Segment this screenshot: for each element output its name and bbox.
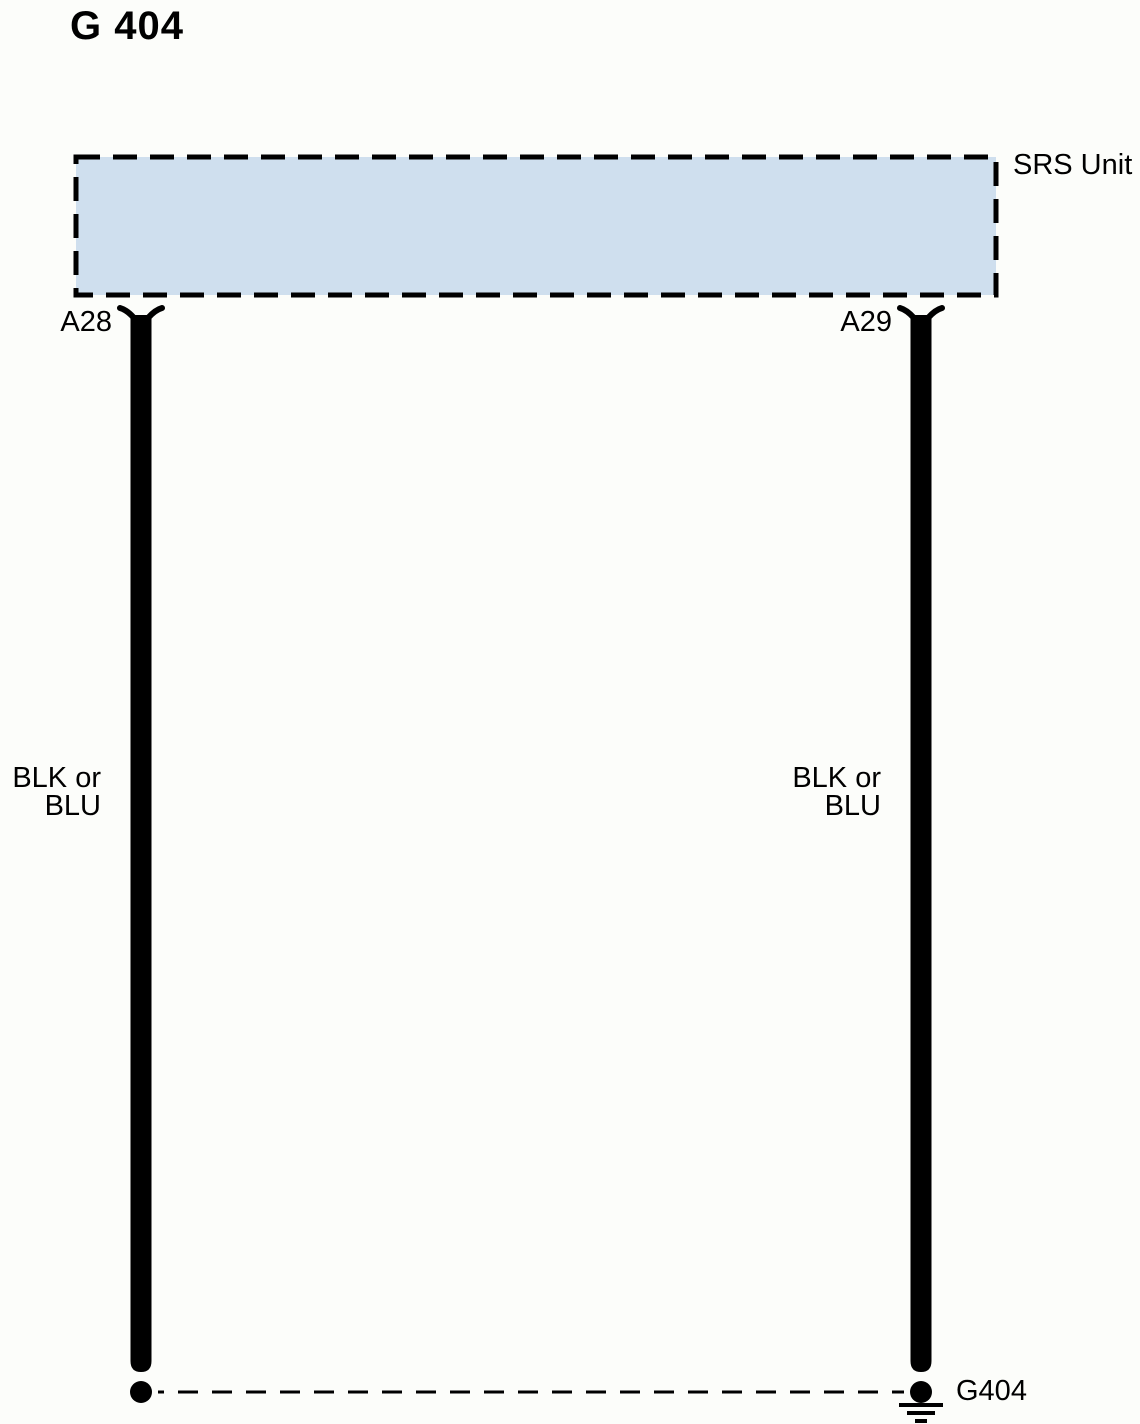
pin-label-a29: A29 [818,308,892,336]
srs-unit-label: SRS Unit [1013,151,1132,179]
ground-label: G404 [956,1377,1027,1405]
srs-unit-box [76,157,996,295]
pin-label-a28: A28 [38,308,112,336]
wiring-diagram-page: G 404 SRS Unit A28 A29 BLK or BLU BLK or… [0,0,1140,1424]
ground-symbol-icon [899,1405,943,1421]
ground-splice-dot-left [130,1381,152,1403]
page-title: G 404 [70,4,184,49]
wire-color-label-left: BLK or BLU [8,764,101,820]
wire-right [911,315,932,1372]
wiring-diagram-canvas [0,0,1140,1424]
wire-left [131,315,152,1372]
ground-splice-dot-right [910,1381,932,1403]
wire-color-label-right: BLK or BLU [788,764,881,820]
